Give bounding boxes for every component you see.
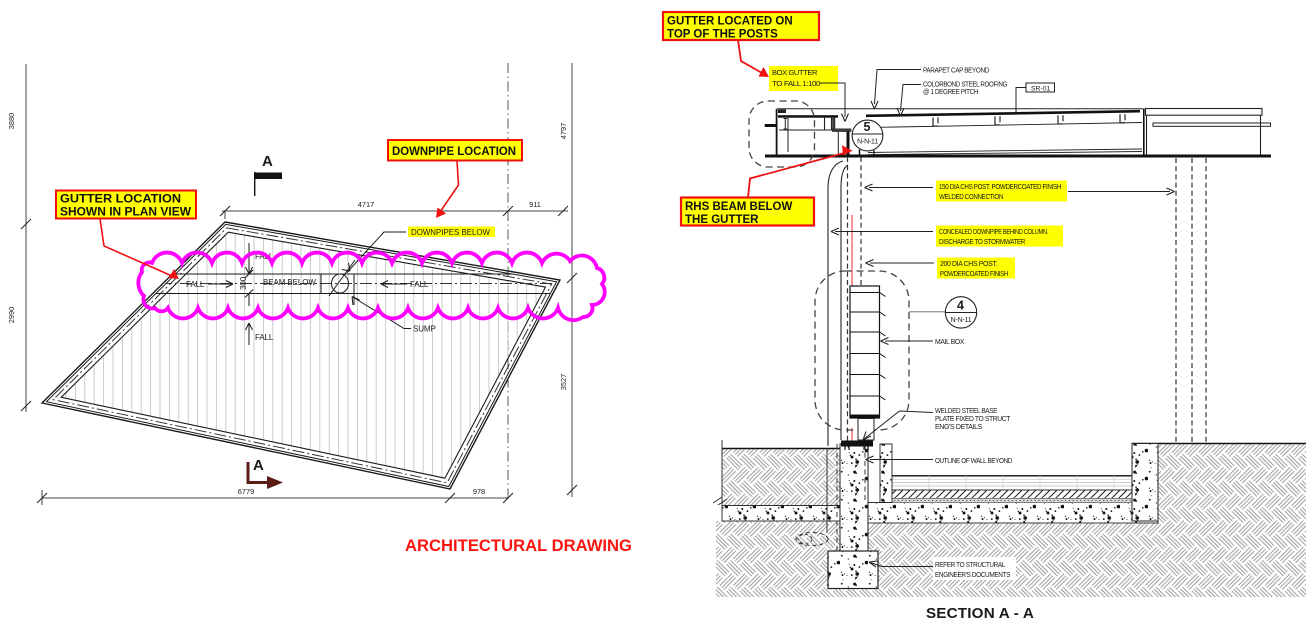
svg-text:ARCHITECTURAL DRAWING: ARCHITECTURAL DRAWING	[405, 537, 632, 555]
svg-text:2990: 2990	[7, 307, 16, 323]
svg-text:DISCHARGE TO STORMWATER: DISCHARGE TO STORMWATER	[939, 238, 1025, 246]
svg-text:300: 300	[239, 276, 248, 290]
svg-text:SR-01: SR-01	[1031, 86, 1050, 93]
svg-text:SHOWN IN PLAN VIEW: SHOWN IN PLAN VIEW	[60, 207, 191, 219]
svg-text:PARAPET CAP BEYOND: PARAPET CAP BEYOND	[923, 67, 989, 75]
svg-text:A: A	[262, 153, 273, 170]
svg-text:WELDED CONNECTION: WELDED CONNECTION	[939, 193, 1003, 201]
svg-text:DOWNPIPE LOCATION: DOWNPIPE LOCATION	[392, 146, 516, 158]
svg-text:6779: 6779	[238, 487, 254, 496]
svg-text:150 DIA CHS POST. POWDERCOATED: 150 DIA CHS POST. POWDERCOATED FINISH	[939, 183, 1061, 191]
svg-text:BEAM BELOW: BEAM BELOW	[263, 278, 316, 287]
svg-text:FALL: FALL	[410, 280, 429, 289]
svg-text:ENGINEER'S DOCUMENTS: ENGINEER'S DOCUMENTS	[935, 571, 1011, 579]
svg-text:FALL: FALL	[255, 333, 274, 342]
svg-text:N-N-11: N-N-11	[951, 317, 972, 324]
svg-text:911: 911	[529, 200, 541, 209]
svg-text:200 DIA CHS POST.: 200 DIA CHS POST.	[940, 260, 997, 268]
svg-text:3880: 3880	[7, 113, 16, 129]
svg-text:978: 978	[473, 487, 485, 496]
svg-text:POWDERCOATED FINISH: POWDERCOATED FINISH	[940, 270, 1008, 278]
svg-text:GUTTER LOCATED ON: GUTTER LOCATED ON	[667, 16, 793, 28]
svg-text:PLATE FIXED TO STRUCT: PLATE FIXED TO STRUCT	[935, 415, 1011, 423]
svg-text:4: 4	[957, 299, 964, 313]
svg-text:DOWNPIPES BELOW: DOWNPIPES BELOW	[411, 228, 490, 237]
svg-text:REFER TO STRUCTURAL: REFER TO STRUCTURAL	[935, 561, 1005, 569]
svg-text:MAIL BOX: MAIL BOX	[935, 338, 965, 346]
svg-text:3527: 3527	[559, 374, 568, 390]
svg-text:4717: 4717	[358, 200, 374, 209]
svg-text:@ 1 DEGREE PITCH: @ 1 DEGREE PITCH	[923, 88, 978, 96]
svg-text:CONCEALED DOWNPIPE BEHIND COLU: CONCEALED DOWNPIPE BEHIND COLUMN.	[939, 228, 1048, 236]
svg-text:SUMP: SUMP	[413, 325, 436, 334]
svg-text:BOX GUTTER: BOX GUTTER	[772, 69, 817, 77]
svg-text:A: A	[253, 457, 264, 474]
svg-text:RHS BEAM BELOW: RHS BEAM BELOW	[685, 201, 792, 213]
svg-text:SECTION A - A: SECTION A - A	[926, 605, 1034, 622]
svg-text:WELDED STEEL BASE: WELDED STEEL BASE	[935, 407, 998, 415]
svg-text:THE GUTTER: THE GUTTER	[685, 214, 759, 226]
svg-text:ENG'S DETAILS: ENG'S DETAILS	[935, 423, 983, 431]
svg-text:TO FALL 1:100: TO FALL 1:100	[772, 80, 820, 88]
svg-text:FALL: FALL	[186, 280, 205, 289]
svg-text:TOP OF THE POSTS: TOP OF THE POSTS	[667, 29, 778, 41]
svg-text:GUTTER LOCATION: GUTTER LOCATION	[60, 194, 181, 206]
svg-text:5: 5	[864, 120, 871, 134]
svg-text:OUTLINE OF WALL BEYOND: OUTLINE OF WALL BEYOND	[935, 457, 1012, 465]
svg-text:N-N-11: N-N-11	[857, 139, 878, 146]
svg-text:4797: 4797	[559, 123, 568, 139]
